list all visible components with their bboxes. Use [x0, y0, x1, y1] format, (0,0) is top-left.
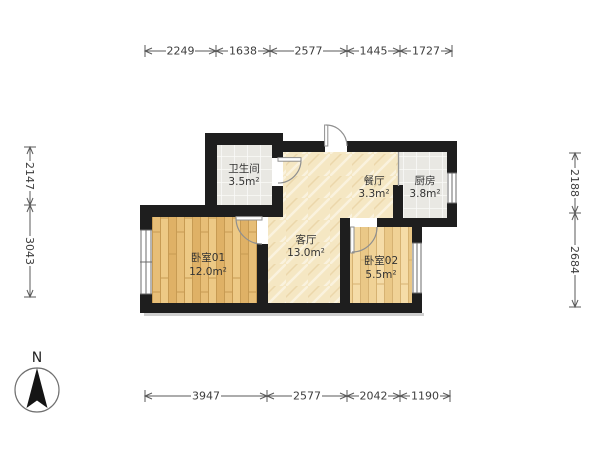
room-label-dining: 餐厅: [364, 174, 385, 187]
wall-bedroom01-right: [257, 244, 268, 303]
dimension-chain-right: 2188 2684: [568, 153, 581, 307]
plan-shadow: [144, 313, 424, 316]
dim-bottom-4: 1190: [411, 390, 439, 403]
dim-top-2: 1638: [229, 45, 257, 58]
window-bedroom02-right: [412, 243, 422, 293]
wall-bathroom-left: [205, 133, 217, 217]
wall-top-mid: [283, 141, 325, 152]
dim-top-1: 2249: [167, 45, 195, 58]
dimension-chain-bottom: 3947 2577 2042 1190: [145, 390, 450, 403]
wall-bedroom01-left-lower: [140, 294, 152, 313]
room-label-bedroom02: 卧室02: [364, 254, 398, 267]
wall-dining-kitchen: [393, 185, 403, 218]
dim-right-1: 2188: [568, 169, 581, 197]
compass-label: N: [32, 350, 42, 366]
dimension-chain-left: 2147 3043: [23, 147, 36, 297]
dim-top-4: 1445: [360, 45, 388, 58]
room-area-kitchen: 3.8m²: [409, 188, 440, 200]
dim-bottom-3: 2042: [360, 390, 388, 403]
room-label-living: 客厅: [296, 233, 317, 246]
floor-plan-page: 2249 1638 2577 1445 1727 3947 2577 2042 …: [0, 0, 600, 450]
wall-kitchen-bottom: [377, 218, 457, 227]
room-label-bathroom: 卫生间: [228, 162, 260, 175]
window-kitchen-right: [447, 173, 457, 203]
door-entrance: [325, 125, 347, 152]
room-area-bedroom01: 12.0m²: [189, 266, 227, 278]
dim-top-3: 2577: [295, 45, 323, 58]
wall-bottom: [140, 303, 422, 313]
dim-bottom-2: 2577: [293, 390, 321, 403]
wall-bedroom01-top: [140, 205, 283, 217]
room-area-living: 13.0m²: [287, 247, 325, 259]
dimension-chain-top: 2249 1638 2577 1445 1727: [145, 45, 452, 58]
window-bedroom01-left: [140, 230, 152, 294]
floor-plan-canvas: 2249 1638 2577 1445 1727 3947 2577 2042 …: [0, 0, 600, 450]
wall-bedroom02-right-upper: [412, 227, 422, 243]
room-label-bedroom01: 卧室01: [191, 251, 225, 264]
wall-kitchen-right-upper: [447, 141, 457, 173]
dim-left-2: 3043: [23, 237, 36, 265]
dim-right-2: 2684: [568, 246, 581, 274]
north-arrow-icon: [27, 368, 48, 408]
wall-top-right: [347, 141, 457, 152]
room-label-kitchen: 厨房: [415, 174, 436, 187]
room-area-bathroom: 3.5m²: [228, 176, 259, 188]
room-area-bedroom02: 5.5m²: [365, 269, 396, 281]
bathroom-floor: [217, 145, 272, 205]
dim-left-1: 2147: [23, 162, 36, 190]
dim-top-5: 1727: [412, 45, 440, 58]
room-area-dining: 3.3m²: [358, 188, 389, 200]
compass-north-indicator: N: [15, 350, 59, 412]
wall-bedroom02-left: [340, 218, 350, 313]
dim-bottom-1: 3947: [192, 390, 220, 403]
wall-bathroom-right-upper: [272, 145, 283, 158]
